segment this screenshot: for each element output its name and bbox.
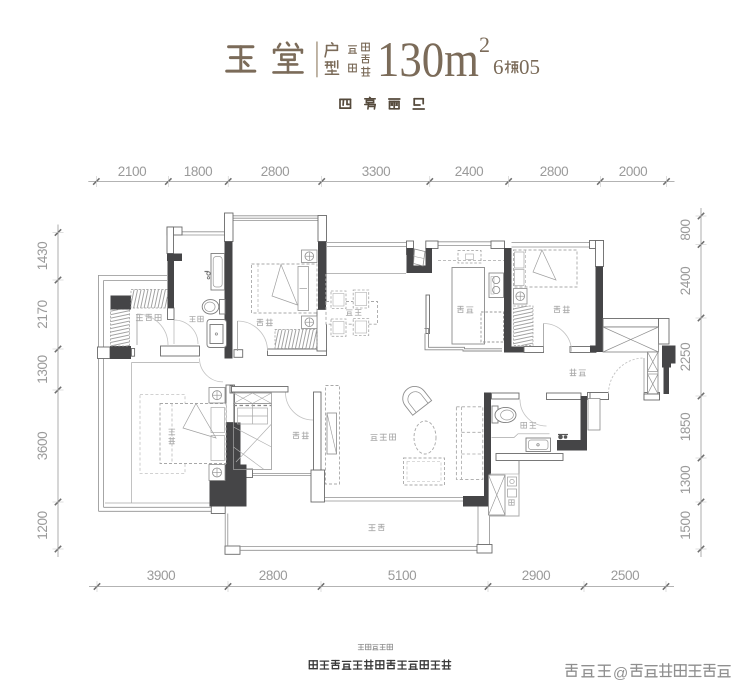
svg-text:1300: 1300 (678, 466, 693, 494)
svg-text:1800: 1800 (184, 164, 212, 179)
svg-text:3300: 3300 (362, 164, 390, 179)
svg-text:800: 800 (678, 219, 693, 240)
svg-text:1300: 1300 (35, 355, 50, 383)
svg-text:1200: 1200 (35, 511, 50, 539)
svg-text:3600: 3600 (35, 432, 50, 460)
svg-text:2100: 2100 (118, 164, 146, 179)
svg-text:1500: 1500 (678, 511, 693, 539)
svg-text:1850: 1850 (678, 413, 693, 441)
svg-text:2800: 2800 (540, 164, 568, 179)
svg-text:@: @ (613, 665, 628, 682)
svg-text:2170: 2170 (35, 300, 50, 328)
svg-text:05: 05 (519, 55, 540, 79)
svg-text:2250: 2250 (678, 343, 693, 371)
svg-text:6: 6 (493, 55, 504, 79)
svg-text:2400: 2400 (455, 164, 483, 179)
svg-text:3900: 3900 (147, 568, 175, 583)
svg-text:2800: 2800 (261, 164, 289, 179)
svg-text:1430: 1430 (35, 242, 50, 270)
svg-text:2: 2 (479, 32, 490, 57)
svg-text:2900: 2900 (522, 568, 550, 583)
svg-text:5100: 5100 (388, 568, 416, 583)
svg-text:2000: 2000 (619, 164, 647, 179)
svg-text:2500: 2500 (611, 568, 639, 583)
svg-text:2400: 2400 (678, 267, 693, 295)
svg-text:2800: 2800 (259, 568, 287, 583)
svg-text:130m: 130m (377, 31, 479, 87)
